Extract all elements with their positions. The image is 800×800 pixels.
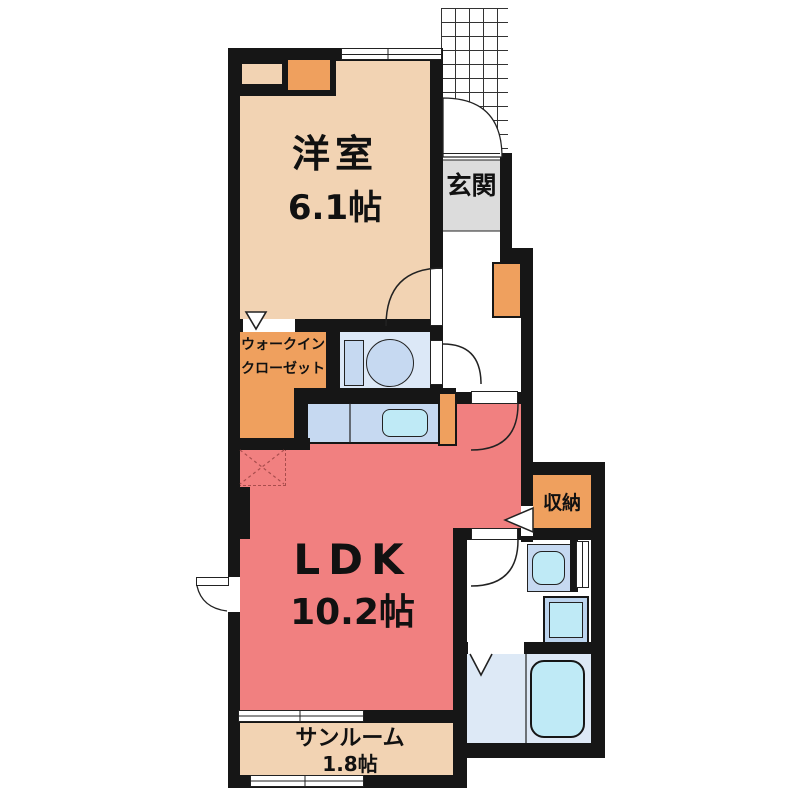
sunroom-window (250, 775, 364, 787)
back-door-swing (197, 586, 227, 611)
vanity-unit-icon (527, 544, 572, 592)
wall-left (228, 48, 240, 788)
ldk-back-door-gap (228, 577, 240, 612)
western-room-window (341, 48, 442, 60)
ldk-door-leaf (471, 391, 518, 404)
wall-ldk-door-right (516, 392, 533, 404)
entrance-porch-hatch (441, 8, 508, 156)
shoe-cabinet (492, 262, 522, 318)
western-room-label: 洋室 6.1帖 (240, 133, 430, 228)
room-walk-in-closet-lower (240, 390, 294, 438)
washing-machine-inner (549, 602, 583, 638)
entrance-label: 玄関 (443, 172, 500, 201)
bathtub-icon (530, 660, 585, 738)
washroom-window (576, 541, 589, 588)
corner-closet-orange (286, 58, 332, 92)
western-room-size: 6.1帖 (240, 189, 430, 228)
sunroom-size: 1.8帖 (250, 753, 450, 776)
wall-hall-right (521, 255, 533, 470)
wic-label-line2: クローゼット (239, 361, 327, 377)
wall-wic-right (326, 332, 340, 392)
wic-door-gap (243, 319, 295, 332)
ldk-label: LDK 10.2帖 (250, 536, 455, 634)
sunroom-name: サンルーム (250, 726, 450, 751)
storage-label: 収納 (533, 493, 591, 515)
toilet-tank-icon (344, 340, 364, 386)
toilet-bowl-icon (366, 339, 414, 387)
vanity-bowl-icon (532, 551, 565, 585)
kitchen-sink-icon (382, 409, 428, 437)
storage-door-gap (521, 506, 533, 536)
ldk-size: 10.2帖 (250, 592, 455, 633)
wall-kitchen-top (294, 388, 456, 404)
wic-label: ウォークイン クローゼット (239, 337, 327, 377)
refrigerator-space (438, 392, 457, 446)
wic-label-line1: ウォークイン (239, 337, 327, 353)
wall-wic-bottom (228, 438, 310, 450)
wall-bathroom-bottom (453, 743, 605, 758)
ldk-back-door-leaf (196, 577, 229, 586)
floorplan-canvas: 洋室 6.1帖 玄関 ウォークイン クローゼット LDK 10.2帖 収納 サン… (0, 0, 800, 800)
wall-pillar-stub (240, 487, 250, 539)
western-room-name: 洋室 (240, 133, 430, 177)
toilet-door-leaf (430, 340, 443, 385)
room-ldk-arm (455, 403, 521, 528)
ldk-name: LDK (250, 536, 455, 584)
wall-ldk-door-left (455, 392, 472, 404)
fridge-dashed-box (238, 448, 286, 486)
corner-closet-beige (240, 62, 284, 86)
bathroom-door-gap (468, 642, 524, 654)
toilet-door-swing (443, 344, 481, 384)
western-room-door-leaf (430, 268, 443, 326)
sunroom-label: サンルーム 1.8帖 (250, 726, 450, 776)
washing-machine-pan-icon (543, 596, 589, 644)
wall-entrance-right (500, 153, 512, 258)
kitchen-counter (305, 402, 441, 444)
washroom-door-leaf (471, 528, 518, 540)
ldk-sunroom-window (238, 710, 364, 722)
